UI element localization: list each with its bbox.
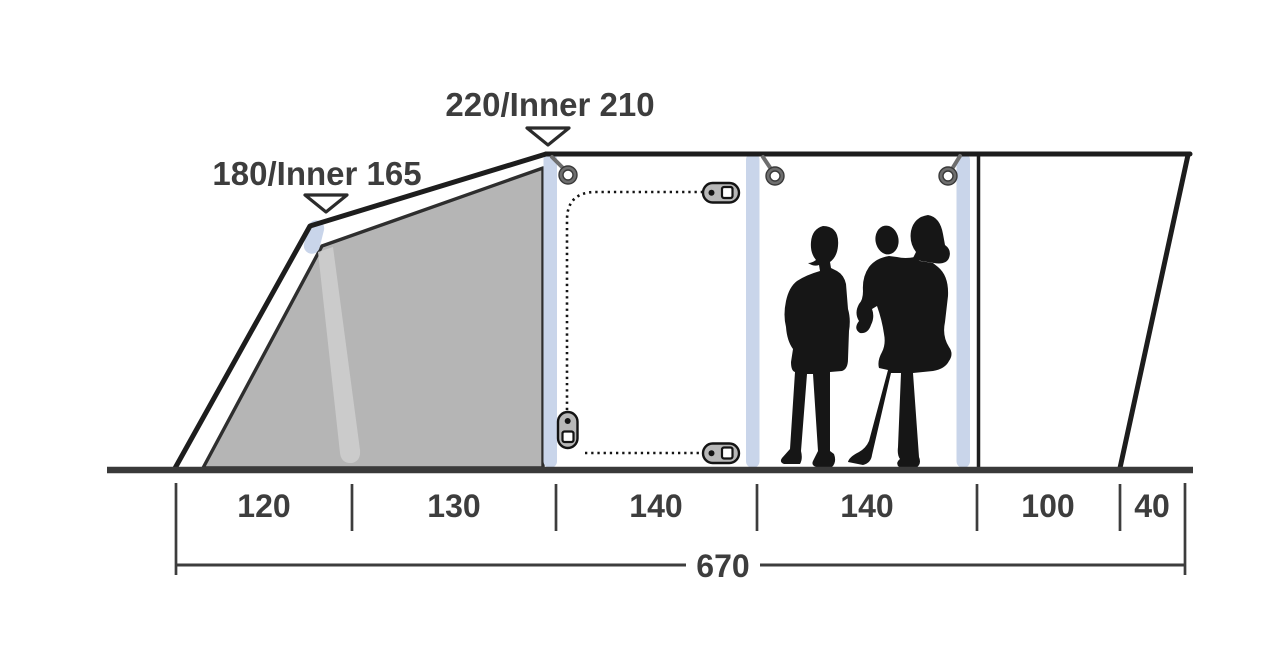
rear-slope-line	[1120, 155, 1188, 468]
down-arrow-icon	[527, 128, 569, 145]
hanging-ring-icon	[763, 157, 784, 185]
dim-value: 140	[840, 488, 893, 524]
zipper-path-top	[567, 192, 703, 411]
front-fabric-panel	[203, 168, 543, 468]
adult-with-child-silhouette	[848, 215, 952, 468]
zipper-pull-bottom-icon	[703, 444, 739, 464]
down-arrow-icon	[305, 195, 347, 212]
dim-value: 40	[1134, 488, 1170, 524]
dim-value: 130	[427, 488, 480, 524]
adult-child-body	[848, 256, 952, 468]
diagram-svg: 180/Inner 165 220/Inner 210 120 130 140 …	[0, 0, 1280, 653]
pole-mid	[746, 153, 760, 468]
height-label-front: 180/Inner 165	[212, 155, 421, 192]
adult-silhouette	[781, 226, 850, 467]
tent-dimension-diagram: 180/Inner 165 220/Inner 210 120 130 140 …	[0, 0, 1280, 653]
dim-value: 120	[237, 488, 290, 524]
pole-peak	[544, 153, 558, 468]
people-silhouettes	[781, 215, 952, 468]
door-zipper	[558, 183, 739, 463]
child-head	[873, 224, 901, 257]
zipper-pull-left-icon	[558, 412, 578, 448]
height-annotations: 180/Inner 165 220/Inner 210	[212, 86, 654, 212]
floor-dimensions: 120 130 140 140 100 40	[176, 483, 1185, 575]
height-label-peak: 220/Inner 210	[445, 86, 654, 123]
pole-rear	[957, 153, 971, 468]
adult-head	[911, 215, 950, 263]
total-length-dimension: 670	[176, 548, 1185, 584]
total-length-value: 670	[696, 548, 749, 584]
zipper-pull-top-icon	[703, 183, 739, 203]
dim-value: 140	[629, 488, 682, 524]
dim-value: 100	[1021, 488, 1074, 524]
